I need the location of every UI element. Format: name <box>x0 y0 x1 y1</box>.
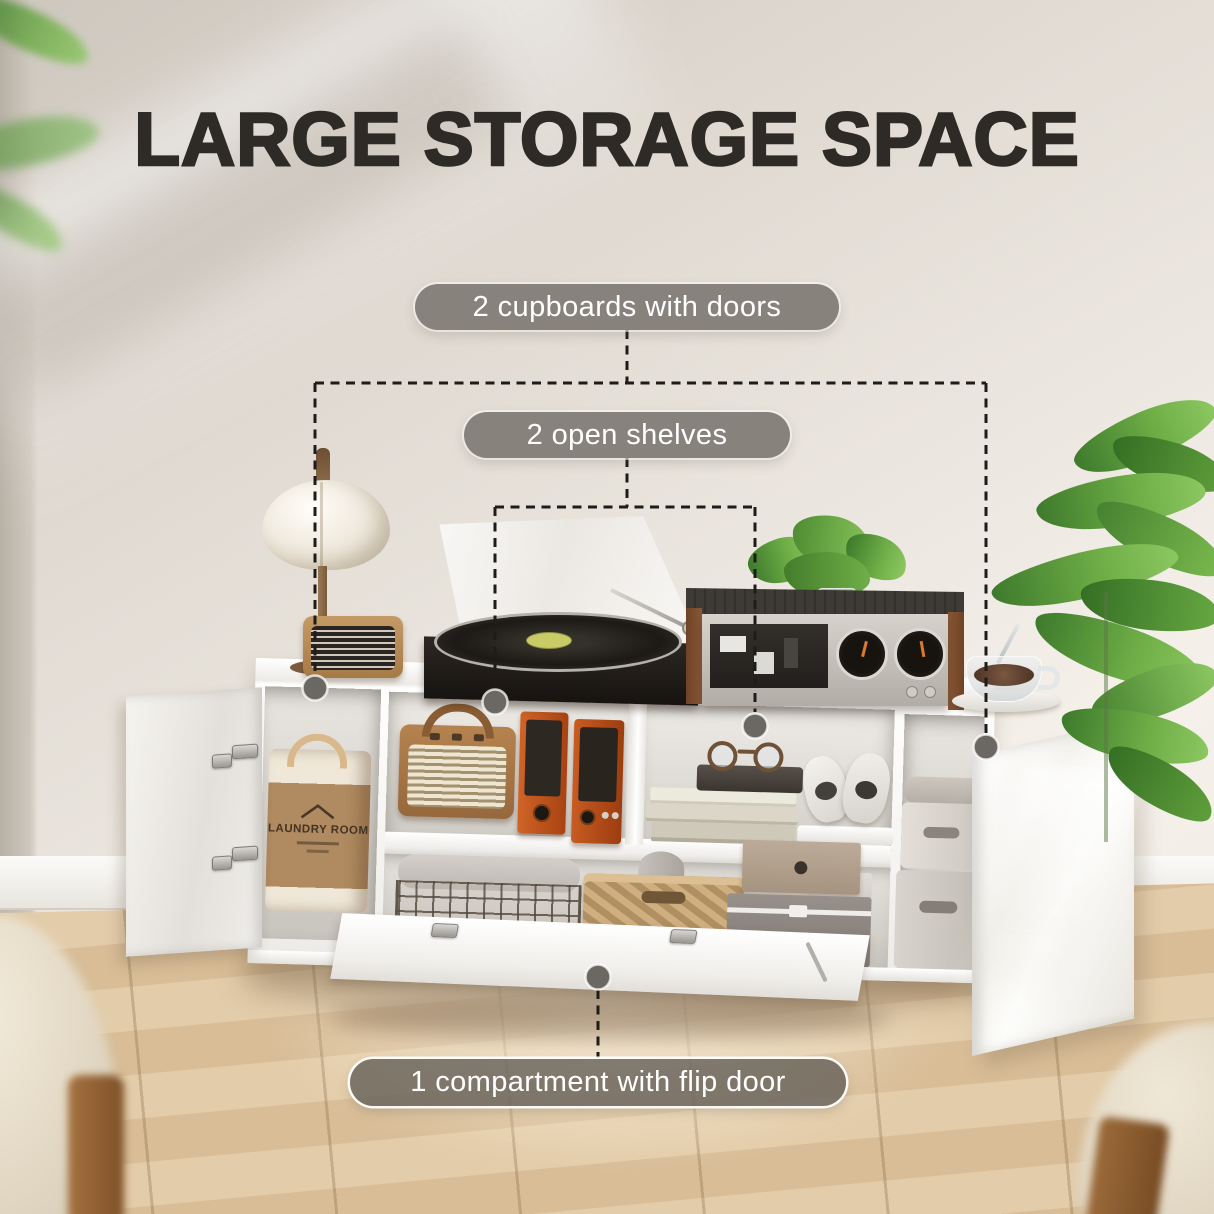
turntable <box>420 500 710 710</box>
amp-label <box>754 652 774 674</box>
door-hinge <box>232 846 258 862</box>
speaker-port <box>579 809 595 825</box>
amp-knob <box>906 686 918 698</box>
amp-wood-side-left <box>686 608 702 704</box>
page-title: LARGE STORAGE SPACE <box>0 96 1214 182</box>
potted-plant-right <box>1000 412 1214 892</box>
radio-grille <box>407 744 507 809</box>
mini-speaker-grille <box>311 626 395 670</box>
callout-pill-shelves: 2 open shelves <box>464 412 790 458</box>
door-hinge <box>212 753 232 768</box>
flip-door-stay-bracket <box>805 942 827 983</box>
plant-stem <box>1104 592 1108 842</box>
bin-handle-slot <box>923 827 959 839</box>
vintage-radio <box>398 724 517 819</box>
glasses-lens <box>753 742 784 773</box>
speaker-front-panel <box>524 720 562 797</box>
callout-pill-cupboards: 2 cupboards with doors <box>415 284 839 330</box>
dial-needle <box>861 641 868 657</box>
storage-bin-top <box>900 802 982 870</box>
bin-handle-slot <box>919 901 957 914</box>
speaker-port <box>533 804 551 822</box>
product-infographic: LAUNDRY ROOM <box>0 0 1214 1214</box>
box-clasp <box>789 905 807 917</box>
door-hinge <box>212 855 232 870</box>
speaker-knob <box>602 812 609 819</box>
hanger-icon <box>298 801 338 820</box>
callout-pill-flip-door: 1 compartment with flip door <box>350 1059 846 1106</box>
basket-handle-slot <box>641 891 685 904</box>
flip-door-shadow <box>330 995 890 1041</box>
glasses-lens <box>707 741 738 772</box>
eyeglasses <box>701 738 802 775</box>
amp-display-window <box>710 624 828 688</box>
amp-label <box>720 636 746 652</box>
controller-touchpad <box>854 779 879 801</box>
controller-touchpad <box>813 780 838 802</box>
orange-speaker-right <box>571 719 624 844</box>
left-cupboard-door <box>126 687 262 957</box>
amp-vu-dial <box>836 628 888 680</box>
amp-label <box>784 638 798 668</box>
radio-knob <box>474 734 484 741</box>
mini-speaker <box>303 616 403 678</box>
glasses-bridge <box>738 749 756 754</box>
speaker-knob <box>612 812 619 819</box>
book-stack <box>645 787 801 847</box>
orange-speaker-left <box>517 711 568 834</box>
pouf-left-leg <box>68 1075 124 1214</box>
record-label <box>526 632 572 649</box>
laundry-bag: LAUNDRY ROOM <box>265 748 371 913</box>
dial-needle <box>920 641 926 657</box>
laundry-bag-label: LAUNDRY ROOM <box>267 822 369 837</box>
door-hinge <box>232 744 258 760</box>
file-box-hole <box>794 861 807 874</box>
callout-pill-flip-door-label: 1 compartment with flip door <box>410 1066 785 1099</box>
radio-knob <box>430 733 440 740</box>
amp-knob <box>924 686 936 698</box>
file-box <box>742 840 861 895</box>
callout-pill-cupboards-label: 2 cupboards with doors <box>473 291 782 324</box>
laundry-bag-smallprint2 <box>307 849 329 853</box>
lamp-shade <box>262 480 390 570</box>
speaker-front-panel <box>578 727 618 802</box>
flip-door-hinge <box>431 923 460 938</box>
callout-pill-shelves-label: 2 open shelves <box>527 419 728 452</box>
flip-door-hinge <box>669 929 698 944</box>
radio-knob <box>452 734 462 741</box>
laundry-bag-smallprint <box>297 841 339 845</box>
lamp-shade-seam <box>320 482 323 568</box>
lamp-finial <box>316 448 330 484</box>
amp-vu-dial <box>894 628 946 680</box>
stereo-amplifier <box>686 512 964 708</box>
